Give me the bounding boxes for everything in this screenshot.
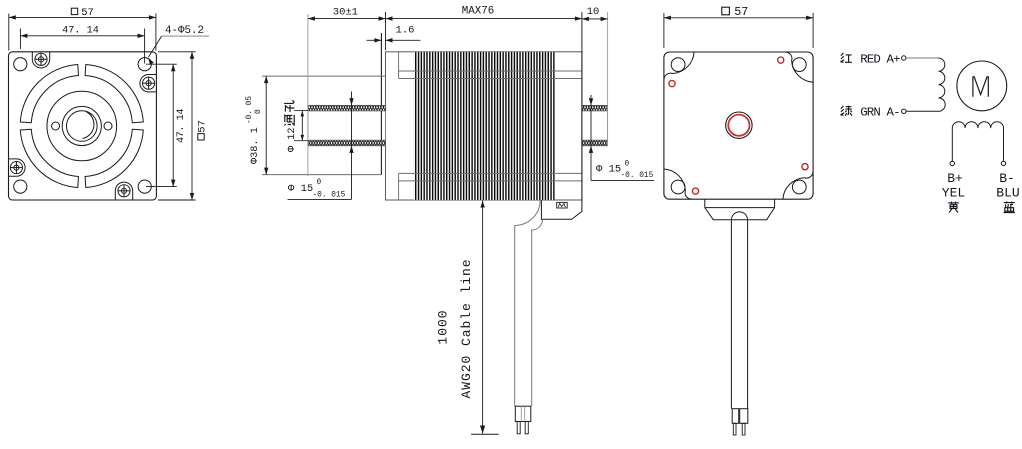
svg-text:Φ 12: Φ 12 [287,128,298,152]
svg-text:Φ 15: Φ 15 [288,183,313,195]
svg-text:47. 14: 47. 14 [62,26,99,37]
svg-text:0: 0 [255,109,263,114]
svg-text:-0. 05: -0. 05 [246,96,254,124]
svg-text:BLU: BLU [996,186,1019,201]
svg-text:YEL: YEL [942,186,965,201]
svg-text:57: 57 [81,7,94,19]
svg-text:B-: B- [999,171,1015,186]
svg-text:MAX76: MAX76 [462,6,494,18]
svg-text:1000: 1000 [435,309,450,344]
svg-text:57: 57 [197,120,209,133]
svg-text:B+: B+ [947,171,963,186]
svg-text:0: 0 [625,161,630,169]
svg-text:AWG20 Cable line: AWG20 Cable line [459,258,474,398]
svg-text:Φ 15: Φ 15 [596,164,621,176]
svg-text:4-Φ5.2: 4-Φ5.2 [165,25,204,37]
svg-text:57: 57 [734,5,748,19]
svg-text:10: 10 [587,6,600,18]
svg-text:30±1: 30±1 [333,7,358,19]
svg-text:0: 0 [317,179,322,187]
svg-text:1.6: 1.6 [396,25,415,37]
svg-text:GRN A-: GRN A- [860,105,900,119]
svg-text:RED A+: RED A+ [860,52,900,66]
svg-text:-0. 015: -0. 015 [621,172,654,180]
svg-text:47. 14: 47. 14 [176,109,187,143]
svg-text:-0. 015: -0. 015 [313,191,346,199]
svg-text:Φ38. 1: Φ38. 1 [250,127,261,164]
